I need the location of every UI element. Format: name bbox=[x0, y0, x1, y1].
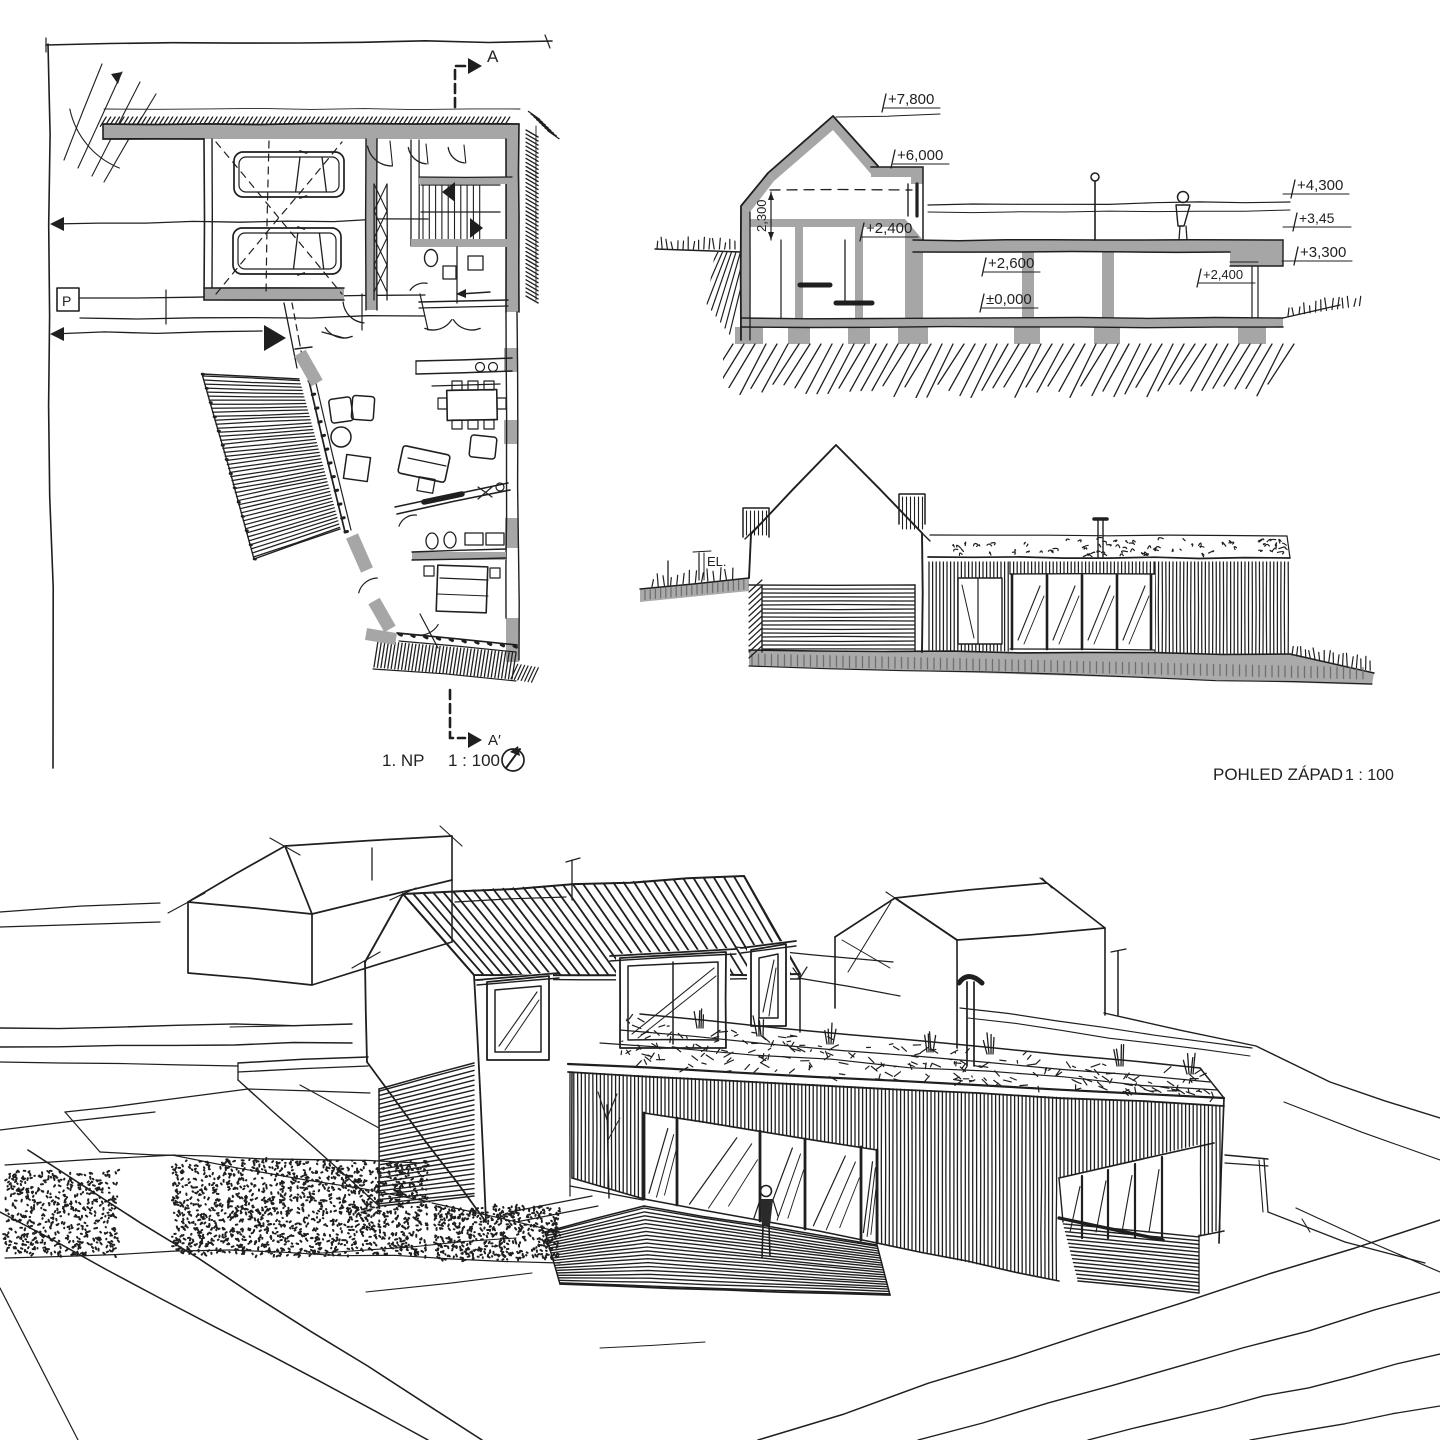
svg-text:EL.: EL. bbox=[707, 554, 727, 569]
svg-text:+7,800: +7,800 bbox=[888, 91, 934, 108]
svg-text:1 : 100: 1 : 100 bbox=[448, 751, 500, 770]
svg-text:+2,400: +2,400 bbox=[866, 220, 912, 237]
svg-text:+3,300: +3,300 bbox=[1300, 244, 1346, 261]
svg-text:P: P bbox=[62, 293, 71, 309]
svg-text:+2,600: +2,600 bbox=[988, 255, 1034, 272]
svg-text:+4,300: +4,300 bbox=[1297, 177, 1343, 194]
svg-text:+6,000: +6,000 bbox=[897, 147, 943, 164]
svg-text:1. NP: 1. NP bbox=[382, 751, 425, 770]
svg-text:+2,400: +2,400 bbox=[1203, 267, 1243, 282]
svg-text:+3,45: +3,45 bbox=[1299, 210, 1335, 226]
svg-text:1 : 100: 1 : 100 bbox=[1345, 767, 1394, 784]
svg-text:±0,000: ±0,000 bbox=[986, 291, 1032, 308]
svg-text:POHLED ZÁPAD: POHLED ZÁPAD bbox=[1213, 765, 1343, 784]
svg-text:A′: A′ bbox=[488, 732, 501, 749]
svg-text:2,300: 2,300 bbox=[754, 199, 769, 232]
svg-text:A: A bbox=[487, 47, 499, 66]
